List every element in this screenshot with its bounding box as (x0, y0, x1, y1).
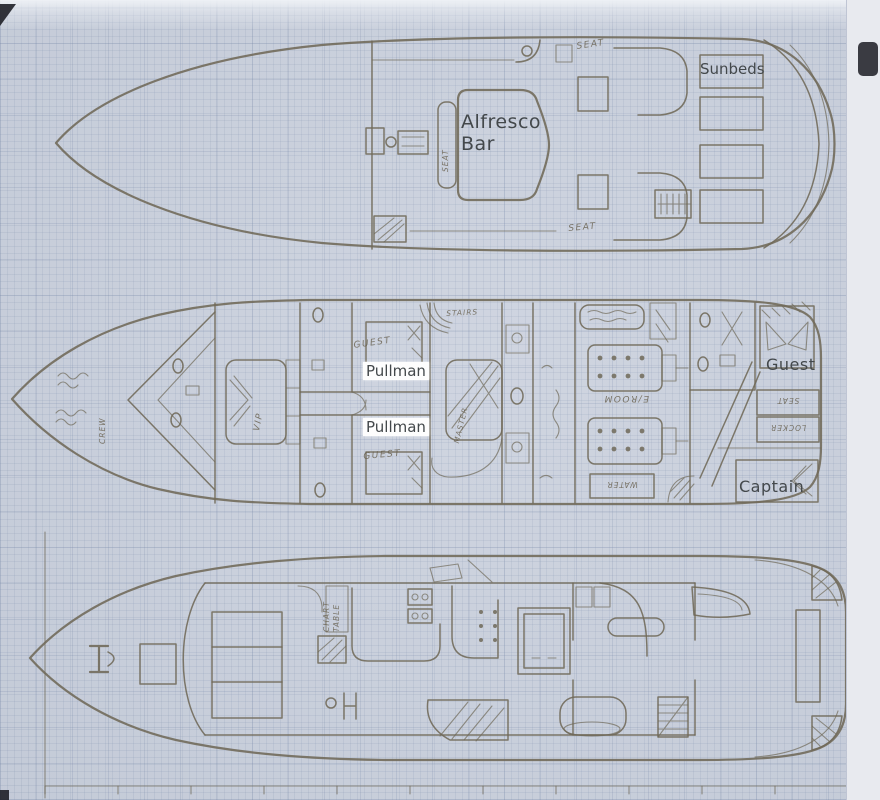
ladder-hatch (655, 190, 691, 218)
windshield (212, 612, 282, 718)
aft-seat-label: SEAT (762, 396, 814, 405)
companionway-stairs (420, 303, 452, 333)
scan-artifact-speck (0, 790, 9, 800)
scanned-deck-plan: SEAT SEAT SEAT Sunbeds Alfresco Bar CREW… (0, 0, 880, 800)
step-dots (479, 610, 497, 642)
water-label: WATER (596, 480, 648, 489)
right-edge-strip (846, 0, 880, 800)
toilet-icon-2 (315, 483, 325, 497)
engine-block-stbd (588, 418, 688, 464)
handwriting-scribble (540, 366, 559, 479)
pullman-fwd-label: Pullman (363, 362, 429, 380)
bow-hatch (140, 644, 176, 684)
seat-table-aft (578, 175, 608, 209)
engine-room-label: E/ROOM (600, 393, 652, 403)
deck-plans-svg (0, 0, 880, 800)
crew-label: CREW (98, 417, 107, 444)
anchor-winch (90, 646, 114, 672)
crew-bunk-scribble (56, 373, 88, 425)
captain-label: Captain (739, 477, 804, 496)
alfresco-bar-label: Alfresco Bar (461, 112, 549, 156)
vip-bed (226, 360, 300, 444)
chart-table-label: CHART TABLE (322, 586, 342, 632)
seat-label-bench: SEAT (441, 149, 450, 172)
aft-deck-seating (560, 587, 750, 737)
transom-hatch (796, 610, 820, 702)
seat-bench-aft (614, 173, 687, 240)
seat-bench-fwd (614, 48, 687, 115)
door-arc (516, 40, 540, 62)
master-cabin (430, 303, 502, 503)
lower-deck-drawing (12, 300, 821, 504)
console-box (366, 128, 384, 154)
sunbed-2 (700, 97, 763, 130)
aft-locker-label: LOCKER (760, 423, 816, 432)
bar-bench (438, 102, 456, 188)
tv-cabinet (518, 608, 570, 674)
sun-deck-stairs (374, 216, 406, 242)
seat-table-fwd (578, 77, 608, 111)
main-deck-drawing (30, 532, 878, 798)
engine-block-port (588, 345, 688, 391)
helm-seat (430, 560, 492, 582)
sunbed-3 (700, 145, 763, 178)
stern-corner-hatch (812, 566, 842, 750)
table-shape (344, 693, 356, 719)
crew-toilet (173, 359, 183, 373)
scan-artifact-blob (858, 42, 878, 76)
main-deck-hull (30, 556, 846, 760)
internal-stairs (318, 636, 346, 663)
toilet-icon (313, 308, 323, 322)
sunbed-4 (700, 190, 763, 223)
scan-artifact-corner (0, 4, 16, 26)
pullman-aft-label: Pullman (363, 418, 429, 436)
galley (352, 586, 498, 661)
engine-room (580, 303, 690, 503)
doorway-curve (600, 583, 647, 656)
guest-aft-label: Guest (766, 355, 816, 374)
sunbeds-label: Sunbeds (700, 60, 764, 78)
sofa-pill (608, 618, 664, 636)
stairs-label: STAIRS (446, 307, 478, 318)
